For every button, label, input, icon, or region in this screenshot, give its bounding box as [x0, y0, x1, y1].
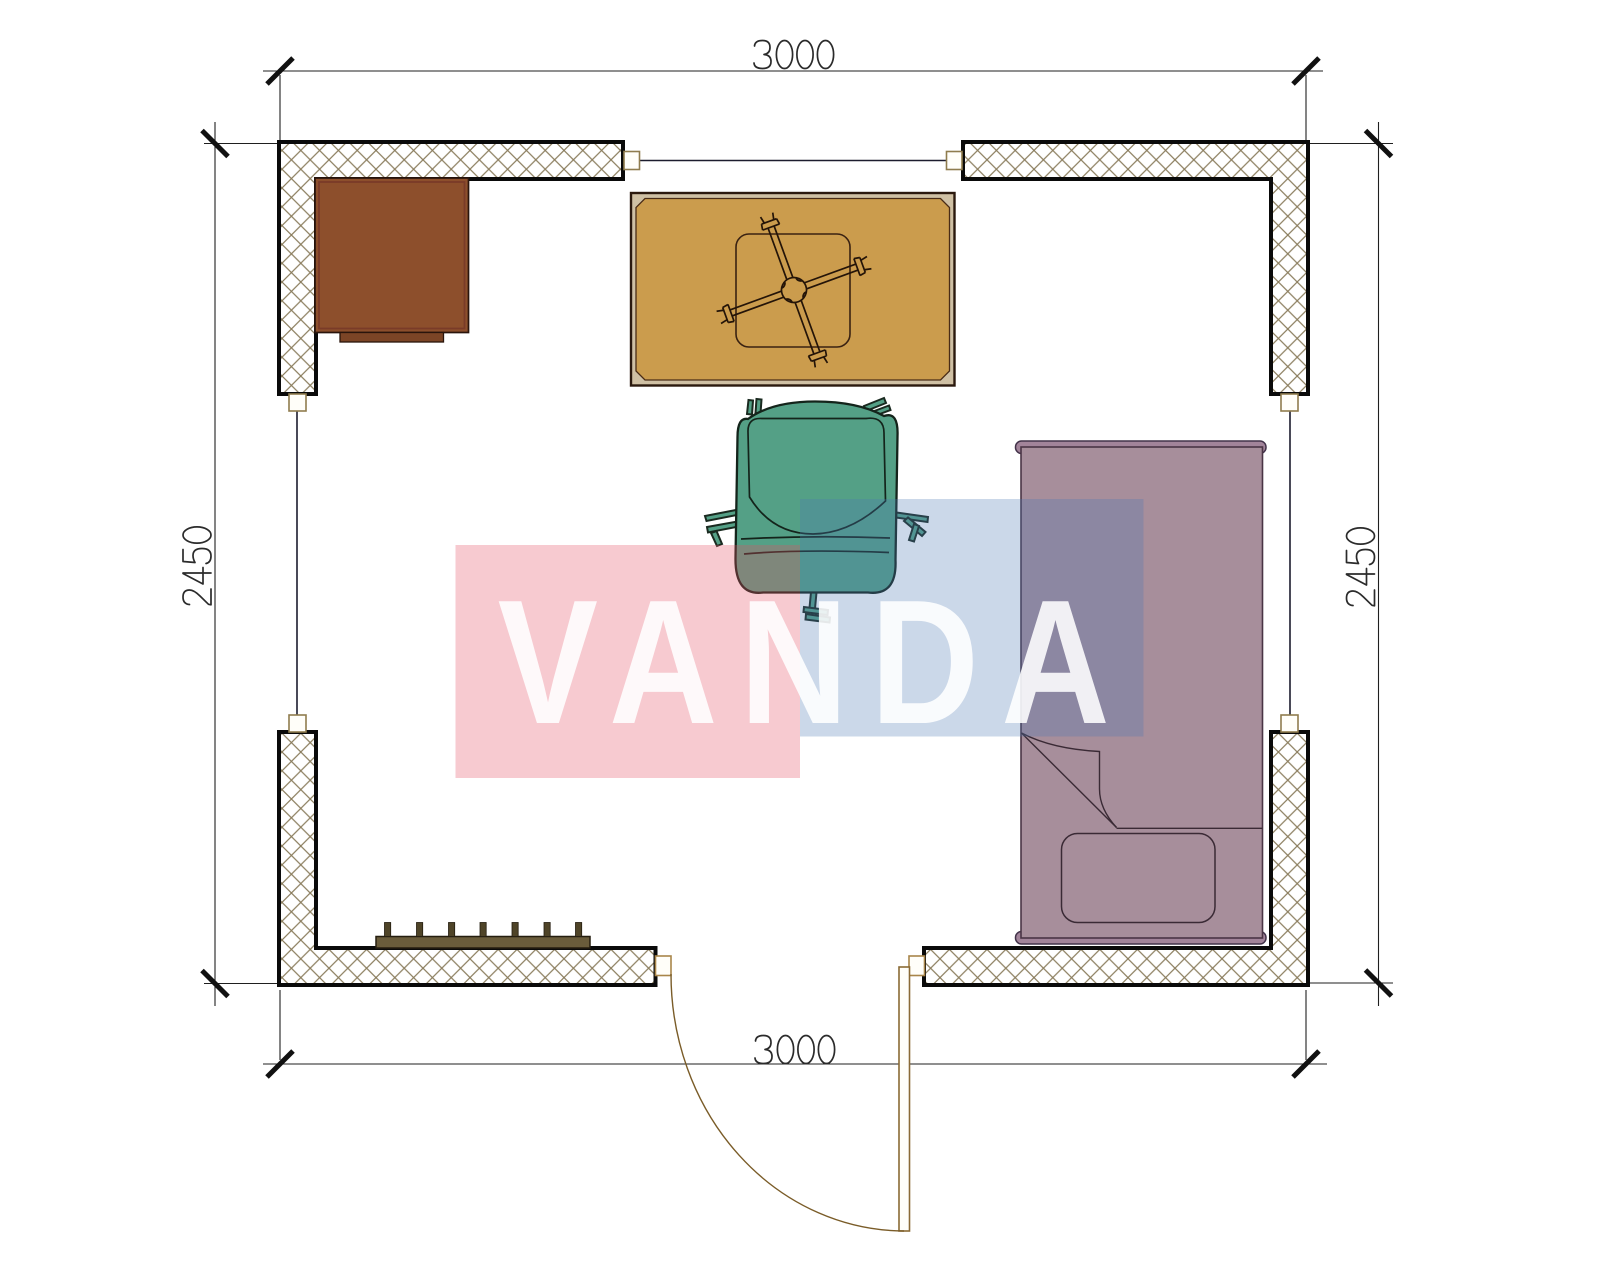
svg-text:VANDA: VANDA: [498, 562, 1132, 760]
